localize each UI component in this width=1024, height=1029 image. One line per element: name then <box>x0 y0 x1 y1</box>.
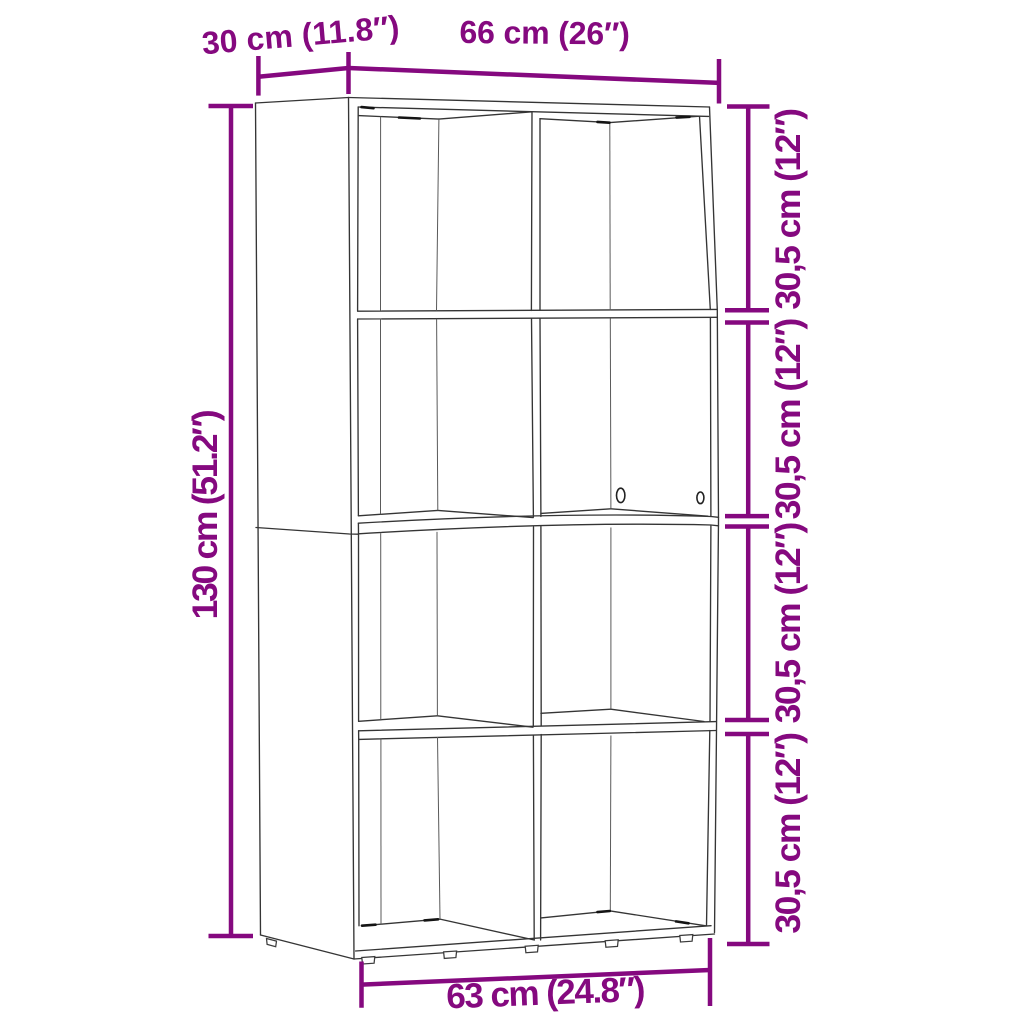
svg-text:66 cm (26″): 66 cm (26″) <box>459 14 630 52</box>
svg-text:30,5 cm (12″): 30,5 cm (12″) <box>768 319 808 520</box>
svg-text:30,5 cm (12″): 30,5 cm (12″) <box>768 523 808 724</box>
svg-text:30,5 cm (12″): 30,5 cm (12″) <box>768 109 808 310</box>
svg-text:30,5 cm (12″): 30,5 cm (12″) <box>768 733 808 934</box>
svg-text:130 cm (51.2″): 130 cm (51.2″) <box>185 410 225 619</box>
svg-text:63 cm (24.8″): 63 cm (24.8″) <box>446 970 645 1017</box>
